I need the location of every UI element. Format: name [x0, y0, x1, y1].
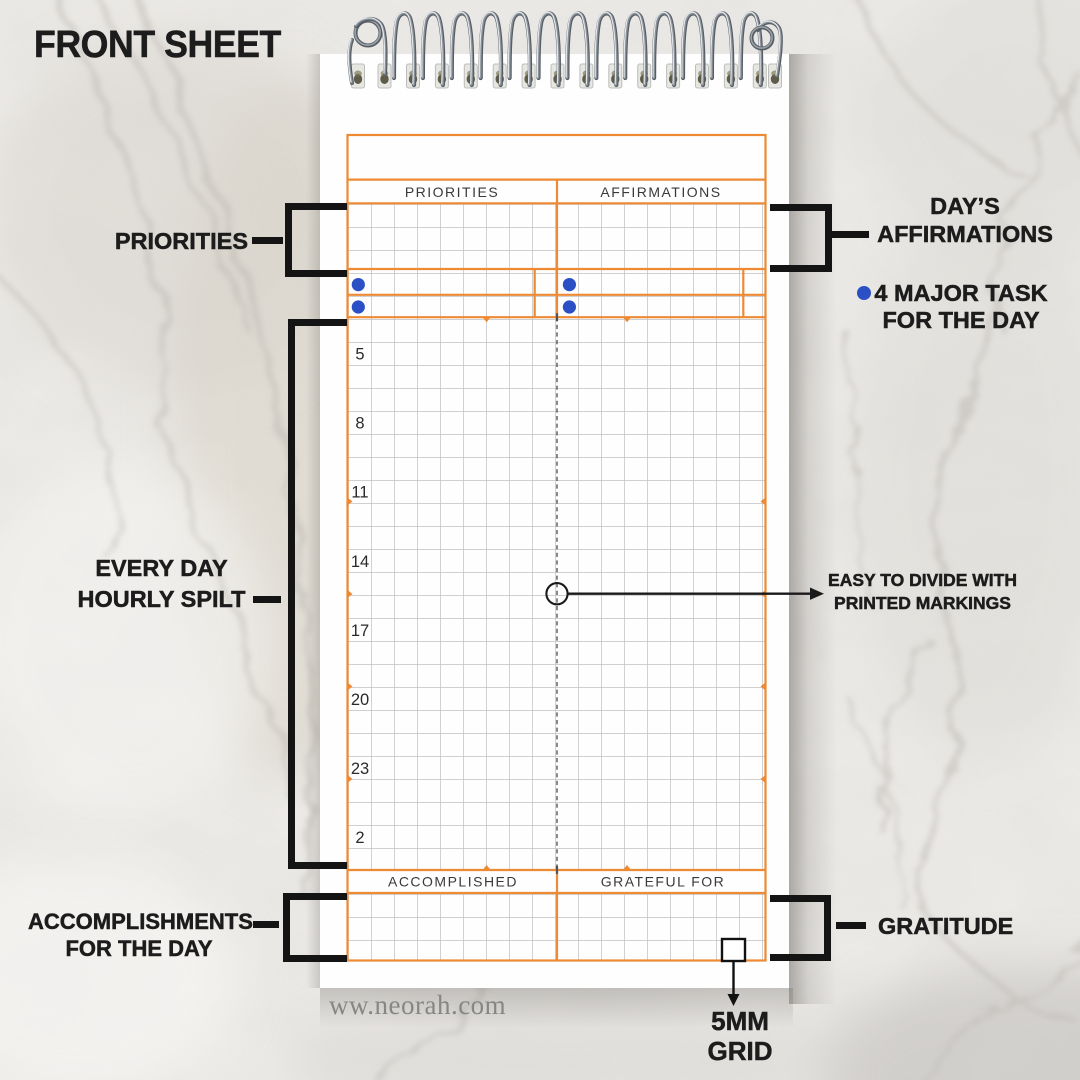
svg-text:14: 14 [351, 553, 369, 571]
svg-text:PRIORITIES: PRIORITIES [405, 184, 499, 200]
svg-text:17: 17 [351, 622, 369, 640]
svg-text:23: 23 [351, 760, 369, 778]
svg-text:AFFIRMATIONS: AFFIRMATIONS [600, 184, 721, 200]
svg-text:11: 11 [351, 484, 368, 502]
svg-text:2: 2 [355, 829, 364, 847]
svg-text:5: 5 [355, 346, 364, 364]
svg-text:8: 8 [355, 415, 364, 433]
svg-text:ACCOMPLISHED: ACCOMPLISHED [388, 874, 518, 890]
svg-text:20: 20 [351, 691, 369, 709]
svg-text:GRATEFUL FOR: GRATEFUL FOR [601, 874, 726, 890]
